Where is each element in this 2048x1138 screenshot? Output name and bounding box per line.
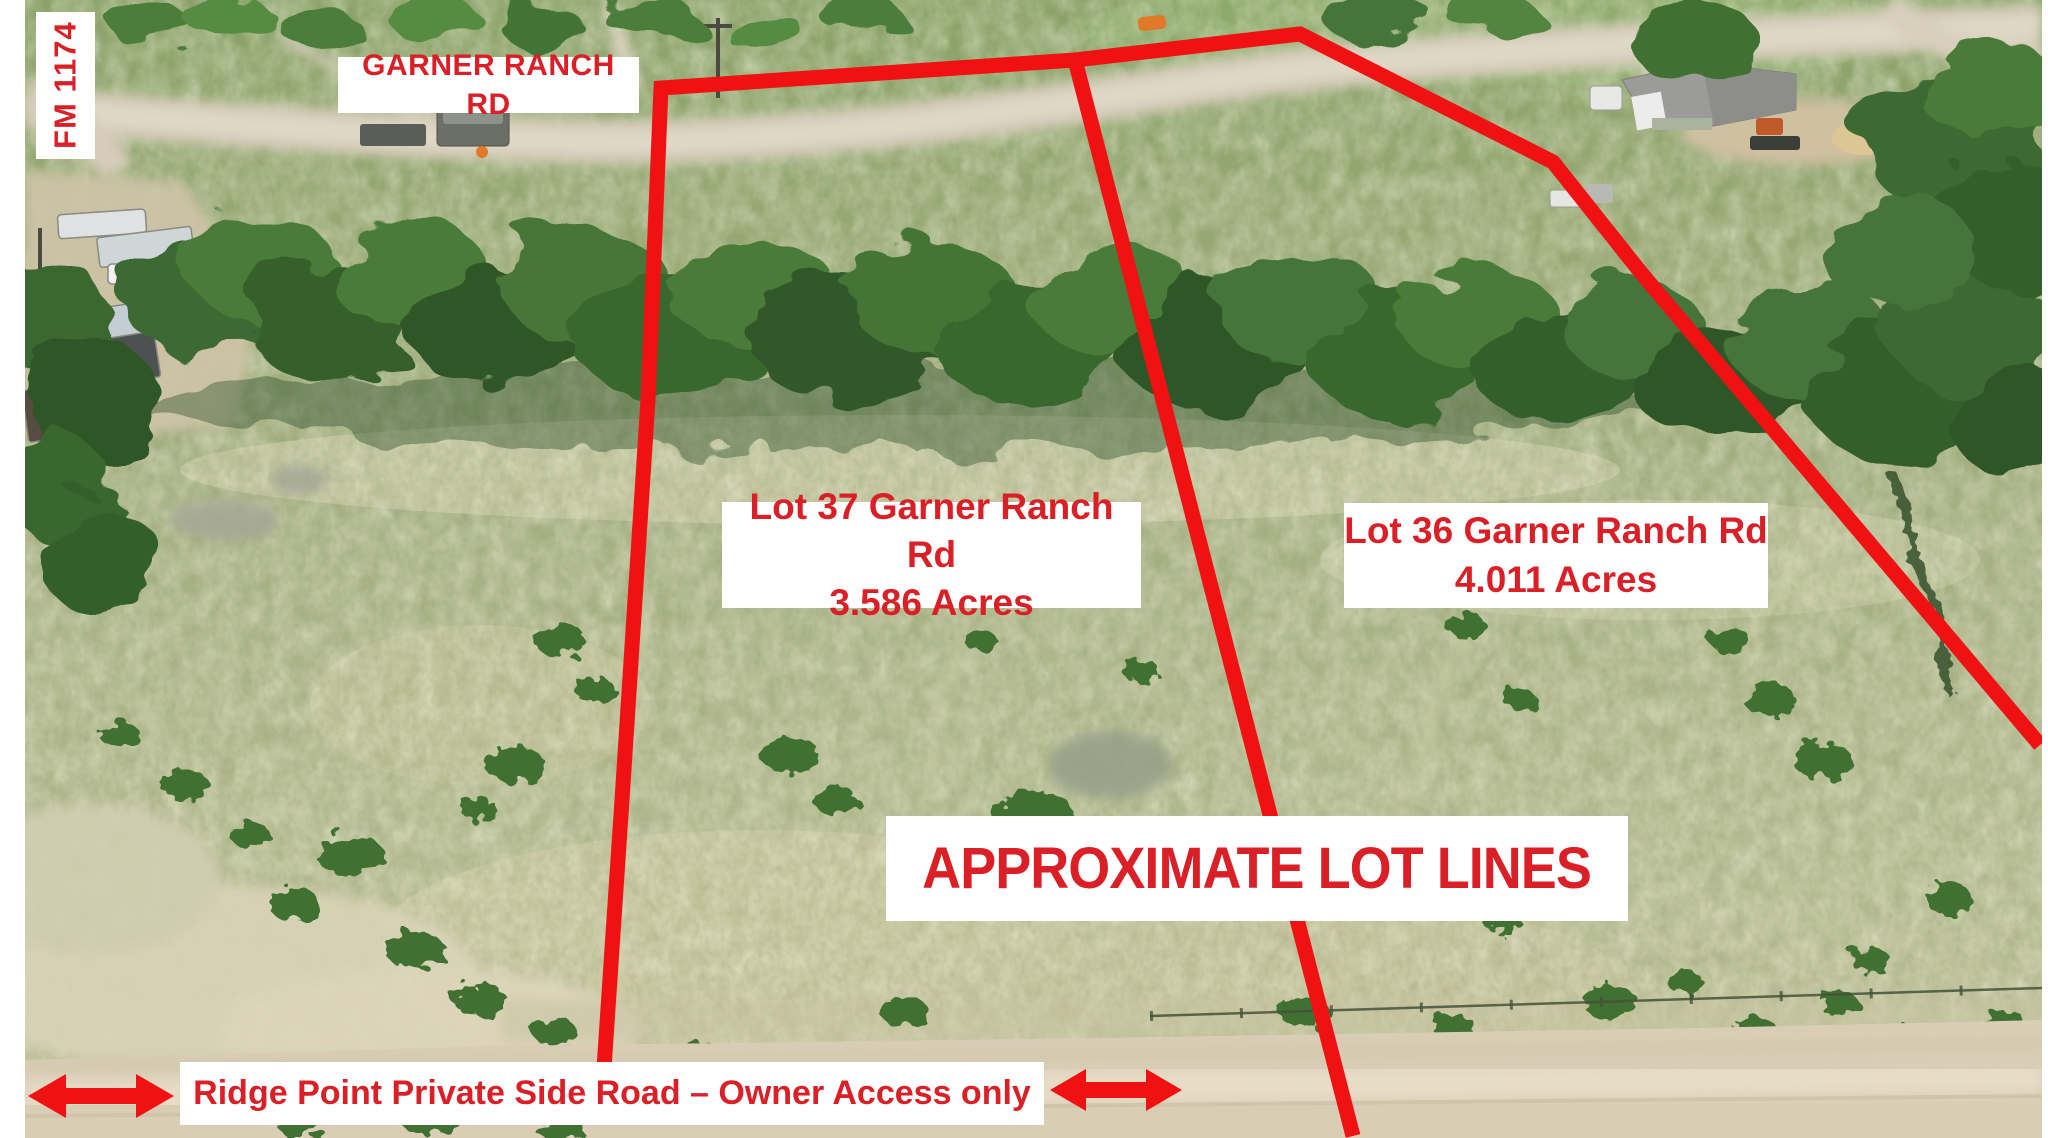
- ridge-point-road-label: Ridge Point Private Side Road – Owner Ac…: [180, 1062, 1044, 1125]
- lot-36-title: Lot 36 Garner Ranch Rd: [1344, 507, 1768, 555]
- approximate-lot-lines-text: APPROXIMATE LOT LINES: [923, 831, 1592, 906]
- approximate-lot-lines-label: APPROXIMATE LOT LINES: [886, 816, 1628, 921]
- garner-ranch-rd-label: GARNER RANCH RD: [338, 57, 639, 113]
- ridge-point-road-text: Ridge Point Private Side Road – Owner Ac…: [193, 1071, 1031, 1115]
- left-margin: [0, 0, 25, 1138]
- lot-37-acreage: 3.586 Acres: [722, 579, 1141, 627]
- lot-36-acreage: 4.011 Acres: [1344, 556, 1768, 604]
- garner-ranch-rd-label-text: GARNER RANCH RD: [338, 46, 639, 124]
- lot-map-image: FM 1174 GARNER RANCH RD Lot 37 Garner Ra…: [0, 0, 2048, 1138]
- lot-36-label: Lot 36 Garner Ranch Rd 4.011 Acres: [1344, 503, 1768, 608]
- lot-37-label: Lot 37 Garner Ranch Rd 3.586 Acres: [722, 502, 1141, 608]
- lot-37-title: Lot 37 Garner Ranch Rd: [722, 483, 1141, 579]
- fm-road-label-text: FM 1174: [45, 22, 85, 150]
- right-margin: [2042, 0, 2048, 1138]
- fm-road-label: FM 1174: [36, 12, 95, 159]
